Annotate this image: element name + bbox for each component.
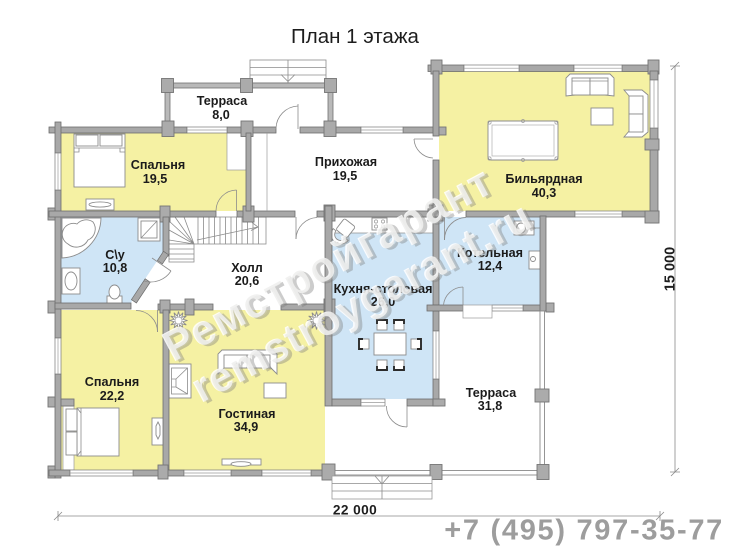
svg-text:19,5: 19,5 (143, 172, 168, 186)
svg-text:10,8: 10,8 (103, 261, 128, 275)
svg-text:15 000: 15 000 (663, 247, 679, 291)
svg-text:19,5: 19,5 (333, 169, 358, 183)
svg-text:34,9: 34,9 (234, 420, 259, 434)
svg-text:Терраса: Терраса (466, 386, 518, 400)
svg-text:План 1 этажа: План 1 этажа (291, 25, 419, 48)
svg-text:22,2: 22,2 (100, 389, 125, 403)
svg-text:Гостиная: Гостиная (219, 407, 276, 421)
svg-text:+7 (495) 797-35-77: +7 (495) 797-35-77 (444, 515, 724, 547)
svg-text:31,8: 31,8 (478, 399, 503, 413)
svg-text:22 000: 22 000 (333, 503, 377, 518)
svg-text:Бильярдная: Бильярдная (505, 172, 582, 186)
svg-text:40,3: 40,3 (532, 186, 557, 200)
svg-text:Спальня: Спальня (85, 375, 139, 389)
svg-text:Спальня: Спальня (131, 158, 185, 172)
svg-text:С\у: С\у (105, 248, 125, 262)
svg-text:Терраса: Терраса (197, 94, 249, 108)
svg-text:Прихожая: Прихожая (315, 155, 377, 169)
svg-text:8,0: 8,0 (212, 108, 230, 122)
